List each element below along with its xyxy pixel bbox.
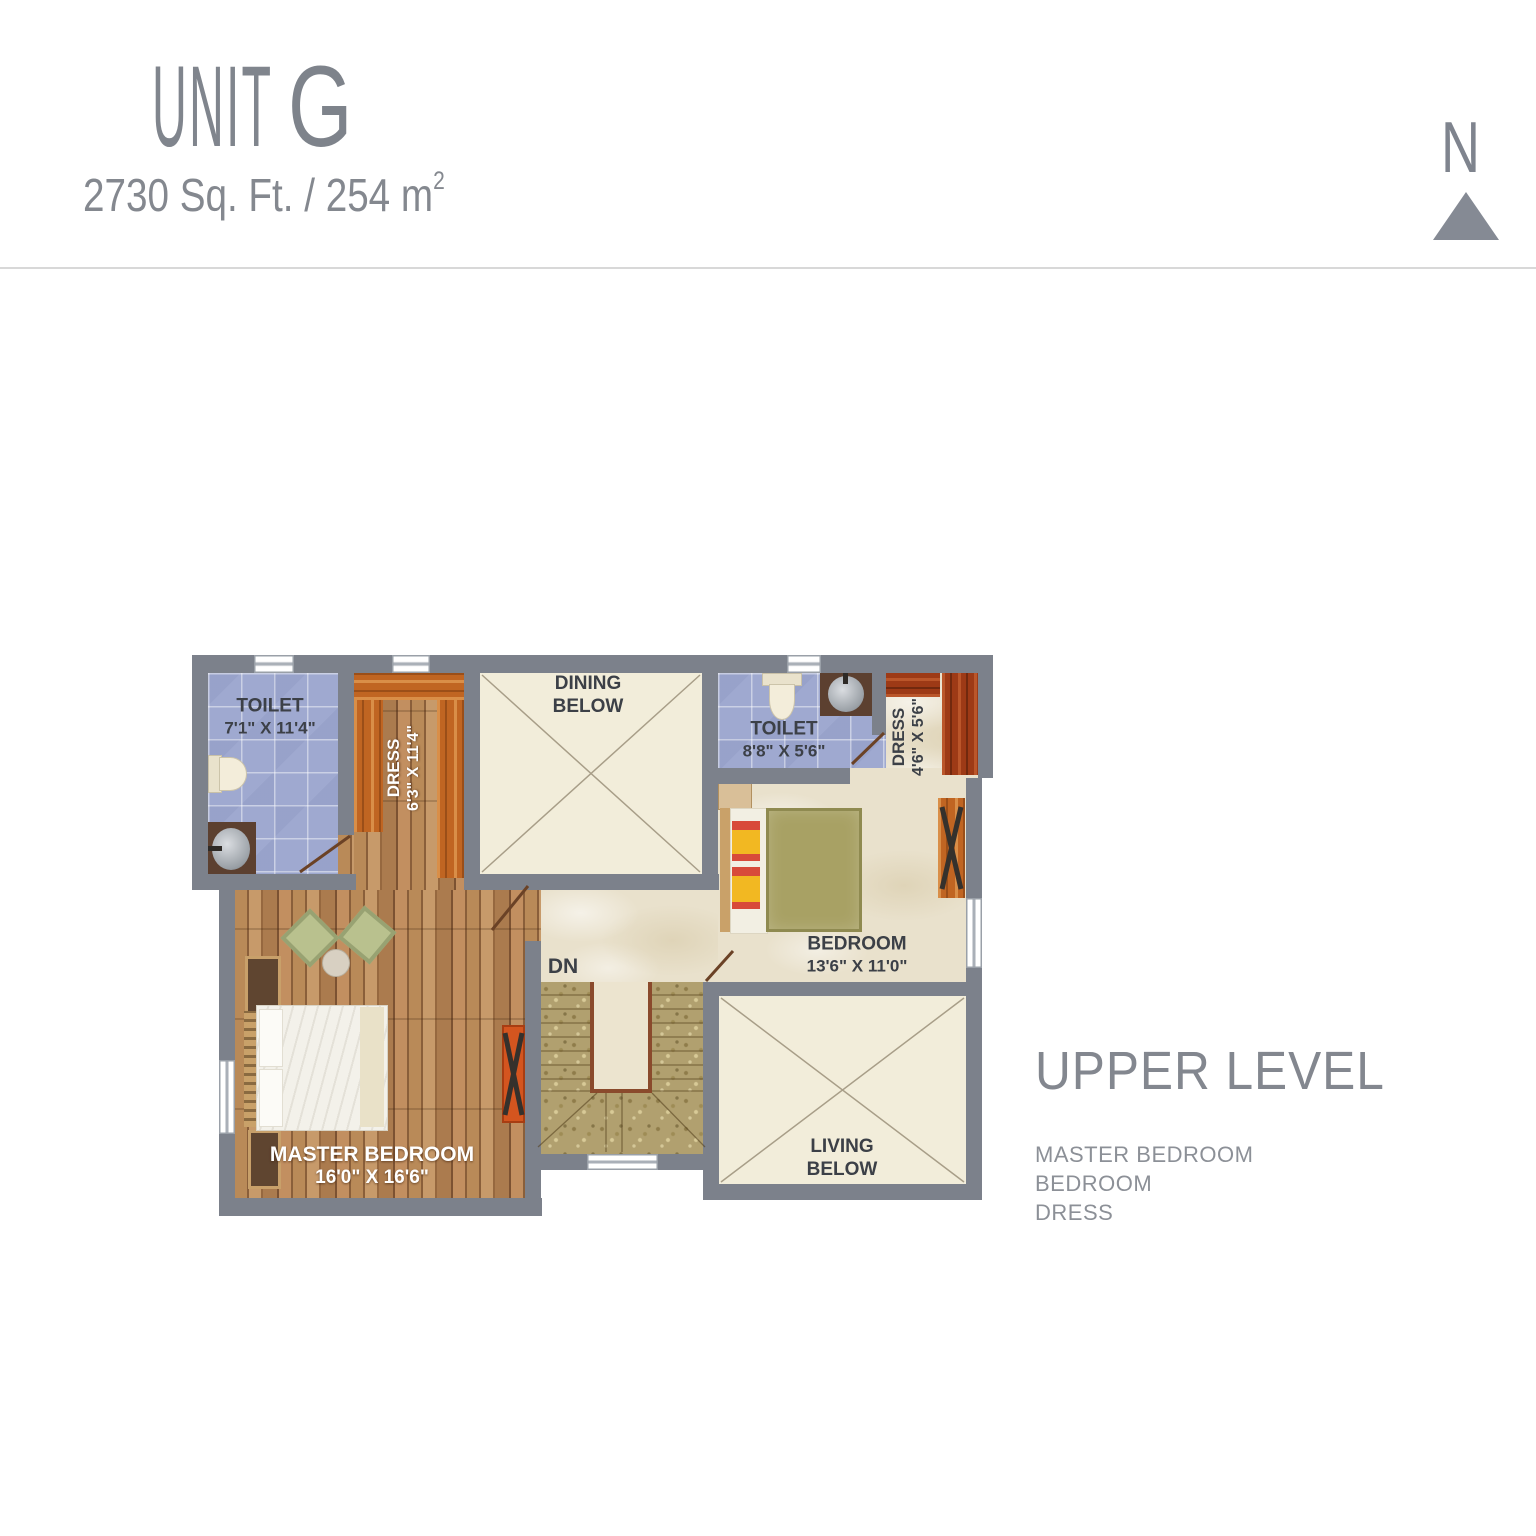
bedroom-name: BEDROOM [807,933,908,956]
toilet2-dims: 8'8" X 5'6" [743,741,826,761]
toilet1-faucet-icon [208,846,222,851]
north-label: N [1441,112,1480,184]
dress2-wardrobe-top [886,673,940,697]
bedroom-bench [718,782,752,810]
dining-line2: BELOW [553,696,624,719]
legend-list: MASTER BEDROOM BEDROOM DRESS [1035,1140,1415,1227]
toilet1-dims: 7'1" X 11'4" [224,718,315,738]
master-bedroom-dims: 16'0" X 16'6" [270,1167,474,1190]
wall-toilet1-dress1 [338,673,354,835]
master-side-table [322,949,350,977]
floor-plan: TOILET 7'1" X 11'4" DRESS 6'3" X 11'4" D… [192,655,993,1216]
stair-void [590,982,652,1093]
legend-item-master-bedroom: MASTER BEDROOM [1035,1140,1415,1169]
toilet2-label: TOILET 8'8" X 5'6" [743,718,826,761]
bedroom-label: BEDROOM 13'6" X 11'0" [807,933,908,976]
unit-area: 2730 Sq. Ft. / 254 m2 [83,172,445,218]
window-top-2 [392,655,430,673]
bedroom-pillow-1 [732,821,760,861]
master-bed-headboard [244,1011,256,1127]
bedroom-wardrobe [938,798,965,898]
window-stairs-bottom [587,1154,658,1170]
legend-item-dress: DRESS [1035,1198,1415,1227]
window-bedroom-right [966,898,982,968]
wall-top [192,655,993,673]
stairs-dn-label: DN [548,955,578,979]
dress2-wardrobe-right [942,673,978,775]
dress1-wardrobe-left [354,700,383,832]
master-bedroom-name: MASTER BEDROOM [270,1142,474,1167]
dress1-doorway-floor [338,835,354,874]
wall-right-mid [966,778,982,898]
north-arrow-icon [1433,192,1499,240]
wall-right-upper [978,655,993,778]
toilet2-faucet-icon [843,672,848,684]
wall-toilet1-left [192,655,208,890]
unit-title-letter: G [288,50,352,165]
dining-below-label: DINING BELOW [553,673,624,719]
dress1-name: DRESS [384,725,404,811]
wall-dining-bottom [464,874,719,890]
wall-toilet1-bottom [192,874,356,890]
master-bed-fold [360,1007,384,1127]
dress1-wardrobe-top [354,673,464,700]
bedroom-dims: 13'6" X 11'0" [807,956,908,976]
living-line2: BELOW [807,1159,878,1182]
wall-master-bottom [219,1198,542,1216]
toilet1-sink-icon [206,822,256,876]
toilet1-name: TOILET [224,695,315,718]
master-pillow-2 [259,1069,283,1127]
wall-dining-left [464,673,480,890]
master-bedroom-label: MASTER BEDROOM 16'0" X 16'6" [270,1142,474,1190]
dining-line1: DINING [553,673,624,696]
dress1-dims: 6'3" X 11'4" [405,725,424,811]
toilet1-label: TOILET 7'1" X 11'4" [224,695,315,738]
wall-living-bottom [703,1184,982,1200]
unit-area-sup: 2 [433,167,445,195]
legend-item-bedroom: BEDROOM [1035,1169,1415,1198]
toilet2-name: TOILET [743,718,826,741]
master-console [502,1025,525,1123]
wall-toilet2-dress2 [872,673,886,735]
unit-area-text: 2730 Sq. Ft. / 254 m [83,169,433,221]
living-line1: LIVING [807,1136,878,1159]
dress2-label: DRESS 4'6" X 5'6" [889,698,929,776]
floorplan-page: { "header": { "title_word": "UNIT", "tit… [0,0,1536,1536]
header-divider [0,267,1536,269]
master-pillow-1 [259,1009,283,1067]
window-master-left [219,1060,235,1134]
wall-master-right [525,941,541,1216]
dress2-dims: 4'6" X 5'6" [910,698,929,776]
dress1-label: DRESS 6'3" X 11'4" [384,725,424,811]
wall-right-lower [966,968,982,1200]
dress2-name: DRESS [889,698,909,776]
bedroom-mattress [766,808,862,932]
legend-title: UPPER LEVEL [1035,1044,1385,1098]
bedroom-bed-headboard [720,808,730,932]
legend: UPPER LEVEL MASTER BEDROOM BEDROOM DRESS [1035,1044,1415,1227]
living-below-label: LIVING BELOW [807,1136,878,1182]
bedroom-pillow-2 [732,867,760,909]
toilet2-sink-icon [820,672,872,716]
unit-title-word: UNIT [152,50,273,165]
window-top-3 [787,655,821,673]
wall-stairs-bottom-right [658,1154,719,1170]
dress1-wardrobe-right [437,700,465,878]
wall-toilet2-bottom [702,768,850,784]
wall-master-left-upper [219,890,235,1060]
wall-bedroom-living [703,982,982,996]
window-top-1 [254,655,294,673]
